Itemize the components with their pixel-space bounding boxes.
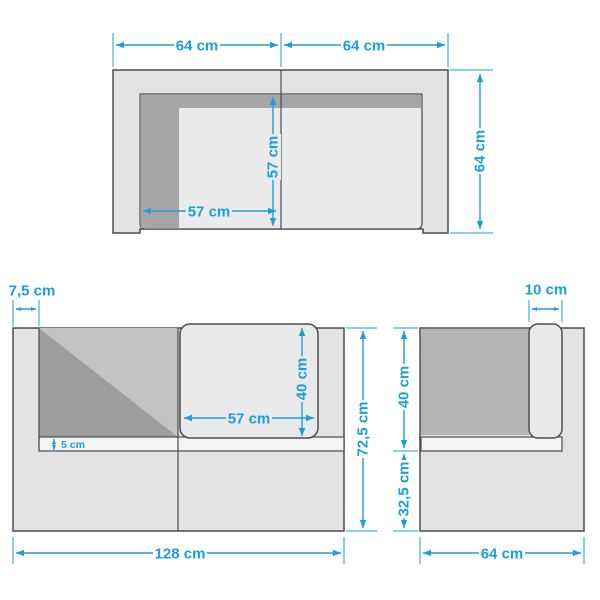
seat-platform-band — [421, 437, 562, 451]
dim-label-side-depth: 64 cm — [481, 546, 524, 563]
dim-label-top-width-left: 64 cm — [176, 38, 219, 55]
dim-label-total-width: 128 cm — [155, 546, 206, 563]
front-view: 7,5 cm 5 cm 57 cm 40 cm 72,5 cm — [9, 283, 377, 565]
backrest-cushion — [529, 324, 562, 438]
dim-label-armrest-width: 7,5 cm — [9, 283, 56, 300]
dim-side-depth: 64 cm — [420, 537, 584, 564]
dim-top-width-right: 64 cm — [284, 33, 448, 67]
dim-top-depth: 64 cm — [450, 70, 493, 233]
dim-backrest-height: 40 cm — [393, 328, 418, 451]
backrest-shadow-strip — [141, 95, 179, 228]
backrest-shadow-panel — [421, 329, 529, 435]
dim-total-height: 72,5 cm — [346, 328, 377, 531]
dim-label-backrest-height: 40 cm — [396, 366, 413, 409]
dim-armrest-width: 7,5 cm — [9, 283, 56, 327]
dim-label-seat-depth: 57 cm — [265, 136, 282, 179]
dim-label-cushion-height: 40 cm — [294, 358, 311, 401]
dim-label-top-width-right: 64 cm — [343, 38, 386, 55]
dim-label-backrest-thickness: 10 cm — [525, 282, 568, 299]
top-view: 64 cm 64 cm 64 cm 57 cm 57 cm — [113, 33, 493, 233]
dim-label-cushion-width: 57 cm — [228, 411, 271, 428]
dim-base-height: 32,5 cm — [393, 454, 418, 531]
dim-label-total-height: 72,5 cm — [355, 401, 372, 456]
dim-total-width: 128 cm — [13, 537, 344, 564]
dim-label-base-height: 32,5 cm — [396, 461, 413, 516]
side-view: 10 cm 40 cm 32,5 cm 64 cm — [393, 282, 584, 565]
dimension-diagram: 64 cm 64 cm 64 cm 57 cm 57 cm — [0, 0, 600, 600]
dim-top-width-left: 64 cm — [113, 33, 281, 67]
dim-backrest-thickness: 10 cm — [525, 282, 568, 323]
dim-label-seat-width: 57 cm — [188, 204, 231, 221]
dim-label-top-depth: 64 cm — [472, 130, 489, 173]
dim-label-platform-thickness: 5 cm — [61, 439, 85, 451]
